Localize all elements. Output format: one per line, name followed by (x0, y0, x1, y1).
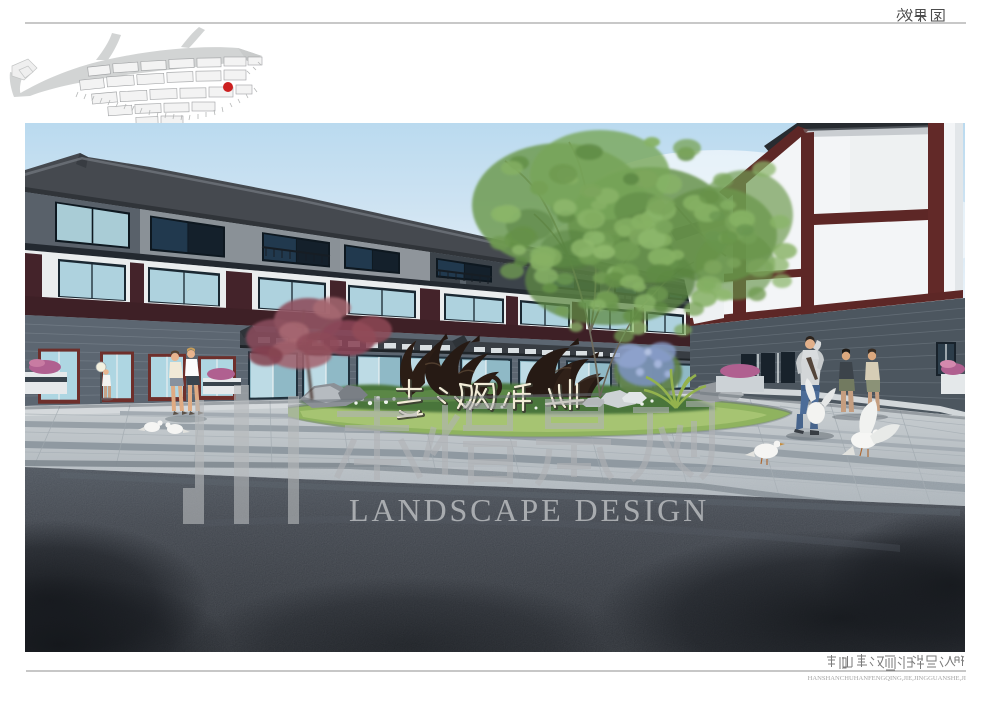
svg-text:LANDSCAPE DESIGN: LANDSCAPE DESIGN (349, 492, 709, 528)
svg-text:HANSHANCHUHANFENGQING,JIE,JING: HANSHANCHUHANFENGQING,JIE,JINGGUANSHE,JI (808, 675, 966, 682)
